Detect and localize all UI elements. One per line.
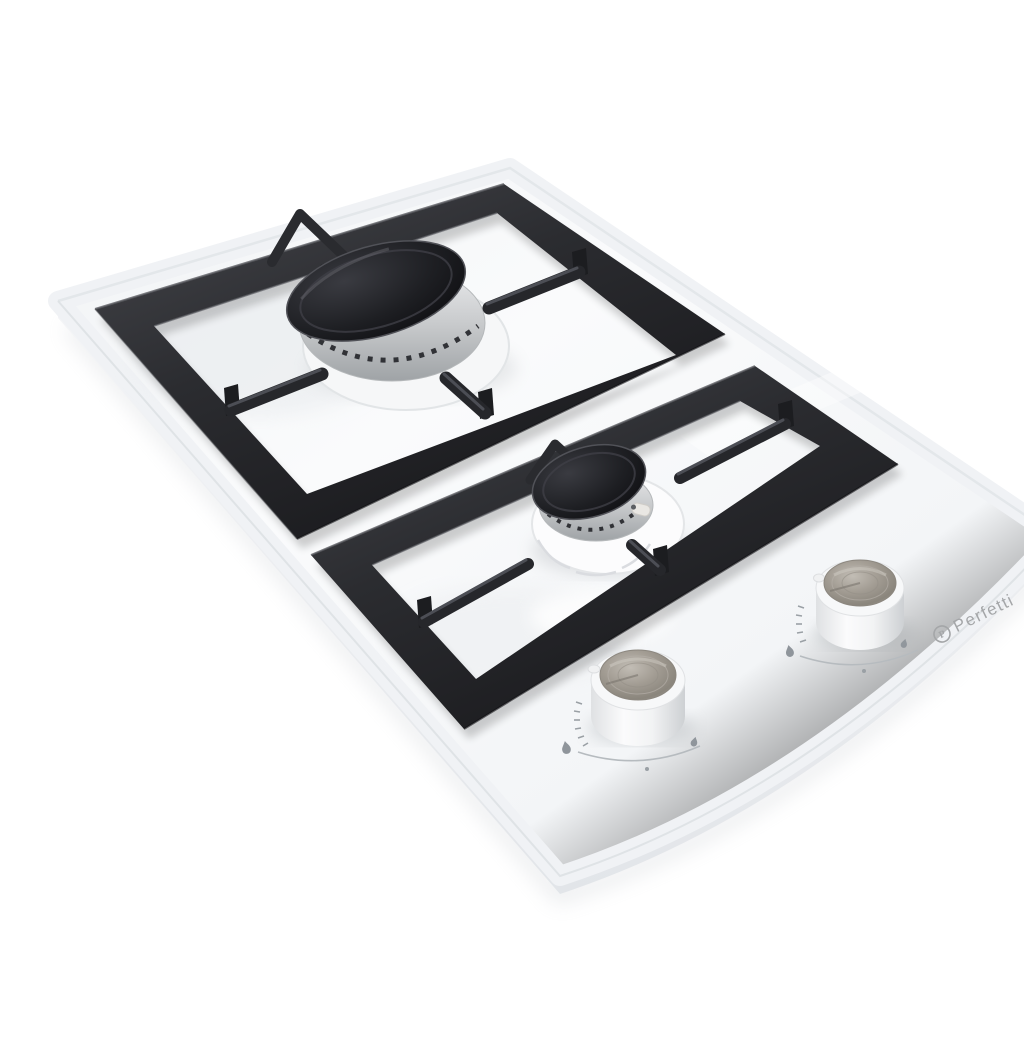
knob-pointer-tab bbox=[588, 665, 600, 673]
knob-cap bbox=[600, 650, 676, 700]
gas-hob-illustration: P Perfetti bbox=[40, 16, 1024, 1040]
product-photo: P Perfetti bbox=[40, 16, 1024, 1040]
knob-pointer-tab bbox=[814, 574, 825, 582]
knob-cap bbox=[824, 560, 896, 606]
off-dot bbox=[862, 669, 866, 673]
off-dot bbox=[645, 767, 649, 771]
